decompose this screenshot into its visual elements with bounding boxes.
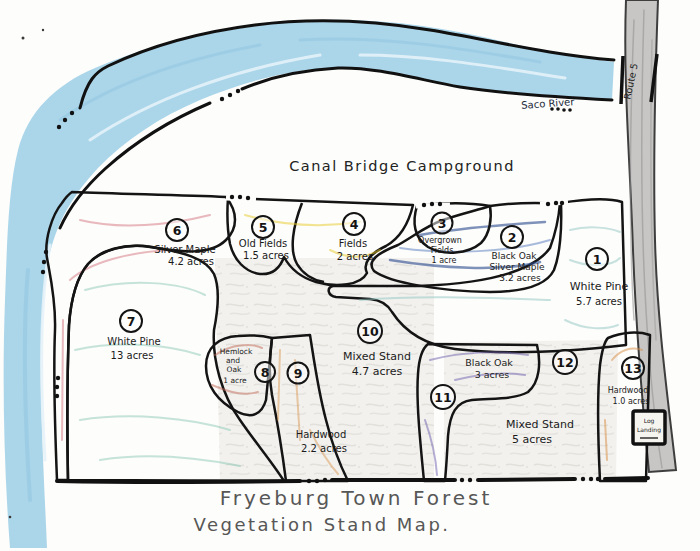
stand-11-name: Black Oak <box>465 357 513 368</box>
stand-5-marker: 5 <box>252 216 274 238</box>
svg-text:1: 1 <box>593 252 602 267</box>
stand-7-texture <box>75 283 240 466</box>
stand-1-marker: 1 <box>586 248 608 270</box>
stand-12-name: Mixed Stand <box>506 418 574 431</box>
svg-text:4: 4 <box>350 217 359 232</box>
stand-7-acres: 13 acres <box>111 350 154 361</box>
svg-text:8: 8 <box>261 365 270 380</box>
svg-text:10: 10 <box>361 324 379 339</box>
map-title-line2: Vegetation Stand Map. <box>193 514 450 535</box>
stand-6-marker: 6 <box>166 219 188 241</box>
stand-1-name: White Pine <box>570 280 629 293</box>
log-landing-box: Log Landing <box>633 411 665 444</box>
stand-2-name-1: Black Oak <box>491 251 537 261</box>
stand-3-name-2: Fields <box>431 246 454 255</box>
stand-2-acres: 3.2 acres <box>499 273 541 283</box>
vegetation-stand-map: 1 2 3 4 5 6 7 8 9 10 11 12 13 White Pine… <box>0 0 700 551</box>
stand-1-acres: 5.7 acres <box>576 296 622 307</box>
log-landing-label-1: Log <box>644 417 655 425</box>
stand-8-marker: 8 <box>255 362 275 382</box>
stand-8-name-2: and <box>226 356 240 365</box>
stand-3-marker: 3 <box>432 213 453 234</box>
stand-5-acres: 1.5 acres <box>243 250 289 261</box>
svg-text:3: 3 <box>438 216 447 231</box>
stand-11-acres: 3 acres <box>475 369 510 380</box>
stand-2-marker: 2 <box>501 226 523 248</box>
stand-7-marker: 7 <box>120 310 142 332</box>
stand-4-acres: 2 acres <box>337 251 373 262</box>
stand-4-name: Fields <box>339 238 367 249</box>
stand-6-acres: 4.2 acres <box>168 256 214 267</box>
stand-10-acres: 4.7 acres <box>352 365 403 378</box>
svg-text:13: 13 <box>624 361 641 376</box>
stand-13-acres: 1.0 acres <box>613 397 650 406</box>
stand-3-name-1: Overgrown <box>418 236 462 245</box>
stand-12-marker: 12 <box>553 350 577 374</box>
stand-12-acres: 5 acres <box>512 433 552 446</box>
stand-10-name: Mixed Stand <box>343 350 411 363</box>
stand-5-name: Old Fields <box>239 238 287 249</box>
stand-8-acres: 1 acre <box>223 376 247 385</box>
stand-9-marker: 9 <box>288 363 309 384</box>
svg-text:9: 9 <box>294 366 303 381</box>
log-landing-label-2: Landing <box>637 426 661 434</box>
stand-13-marker: 13 <box>622 357 644 379</box>
campground-label: Canal Bridge Campground <box>289 158 515 174</box>
stand-8-name-3: Oak <box>227 365 242 374</box>
stand-6-name: Silver Maple <box>154 244 215 255</box>
stand-9-name: Hardwood <box>296 429 347 440</box>
saco-river-label: Saco River <box>521 96 576 111</box>
svg-text:6: 6 <box>173 223 182 238</box>
stand-8-name-1: Hemlock <box>220 347 253 356</box>
svg-text:7: 7 <box>127 314 136 329</box>
bottom-border <box>57 478 648 482</box>
stand-4-marker: 4 <box>343 213 365 235</box>
stand-7-name: White Pine <box>107 336 160 347</box>
stand-3-acres: 1 acre <box>432 256 457 265</box>
svg-text:12: 12 <box>556 355 573 370</box>
map-title-line1: Fryeburg Town Forest <box>220 486 493 510</box>
stand-9-acres: 2.2 acres <box>301 443 347 454</box>
stand-11-marker: 11 <box>431 385 455 409</box>
svg-text:2: 2 <box>508 230 517 245</box>
stand-13-name: Hardwood <box>608 386 649 395</box>
svg-text:5: 5 <box>259 220 268 235</box>
stand-2-name-2: Silver Maple <box>489 262 545 272</box>
stand-10-marker: 10 <box>358 319 382 343</box>
svg-text:11: 11 <box>434 390 451 405</box>
